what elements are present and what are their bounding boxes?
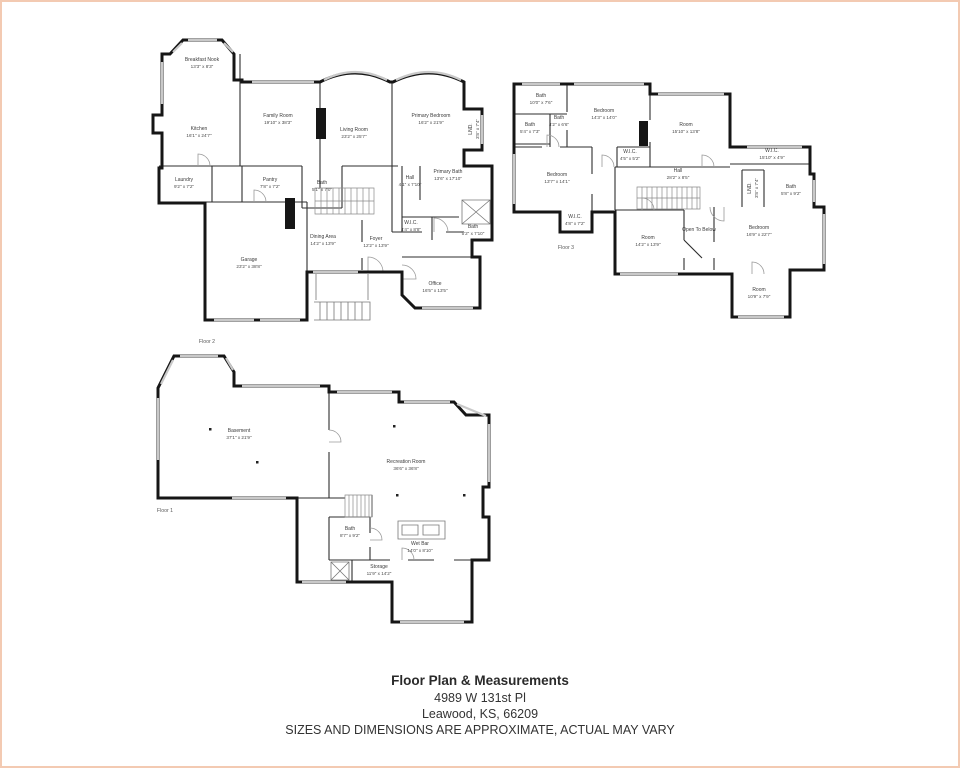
room-label: Hall4'1" x 7'10" bbox=[399, 175, 422, 187]
room-label: Bedroom16'9" x 22'7" bbox=[746, 225, 771, 237]
room-dimensions: 23'2" x 25'7" bbox=[340, 133, 368, 139]
room-name: Breakfast Nook bbox=[185, 57, 219, 64]
room-label: W.I.C.4'4" x 8'8" bbox=[401, 220, 421, 232]
room-dimensions: 3'8" x 7'4" bbox=[753, 178, 759, 198]
floor-label-floor-2: Floor 2 bbox=[199, 339, 215, 345]
room-dimensions: 11'9" x 14'2" bbox=[367, 570, 392, 576]
room-label: Dining Area14'2" x 13'9" bbox=[310, 234, 336, 246]
room-label: Bedroom14'3" x 14'0" bbox=[591, 108, 616, 120]
room-label: Bath5'8" x 9'2" bbox=[781, 184, 801, 196]
room-label: LND.3'8" x 7'4" bbox=[468, 119, 480, 139]
room-label: Bath8'7" x 9'2" bbox=[340, 526, 360, 538]
room-dimensions: 4'4" x 8'8" bbox=[401, 226, 421, 232]
room-label: Storage11'9" x 14'2" bbox=[367, 564, 392, 576]
room-label: Primary Bath13'6" x 17'10" bbox=[434, 169, 463, 181]
room-name: Family Room bbox=[263, 113, 292, 120]
room-dimensions: 4'8" x 7'2" bbox=[565, 220, 585, 226]
room-label: W.I.C.4'8" x 7'2" bbox=[565, 214, 585, 226]
room-dimensions: 36'6" x 36'8" bbox=[387, 465, 426, 471]
room-name: Dining Area bbox=[310, 234, 336, 241]
room-label: Family Room19'10" x 38'3" bbox=[263, 113, 292, 125]
room-label: W.I.C.4'5" x 5'2" bbox=[620, 149, 640, 161]
room-label: Primary Bedroom16'2" x 21'9" bbox=[412, 113, 451, 125]
room-dimensions: 4'2" x 6'6" bbox=[549, 121, 569, 127]
room-name: Laundry bbox=[174, 177, 194, 184]
room-dimensions: 16'2" x 21'9" bbox=[412, 119, 451, 125]
room-dimensions: 19'10" x 38'3" bbox=[263, 119, 292, 125]
room-label: Bath4'2" x 6'6" bbox=[549, 115, 569, 127]
room-dimensions: 5'1" x 7'0" bbox=[312, 186, 332, 192]
room-name: Primary Bath bbox=[434, 169, 463, 176]
room-dimensions: 37'1" x 21'9" bbox=[226, 434, 251, 440]
room-name: Storage bbox=[367, 564, 392, 571]
room-name: Bedroom bbox=[591, 108, 616, 115]
room-label: Room10'9" x 7'9" bbox=[748, 287, 771, 299]
room-dimensions: 3'8" x 7'4" bbox=[474, 119, 480, 139]
room-label: Bath10'0" x 7'6" bbox=[530, 93, 553, 105]
footer-text-block: Floor Plan & Measurements 4989 W 131st P… bbox=[2, 673, 958, 737]
room-dimensions: 13'6" x 17'10" bbox=[434, 175, 463, 181]
room-label: Wet Bar14'0" x 8'10" bbox=[407, 541, 432, 553]
room-label: LND.3'8" x 7'4" bbox=[747, 178, 759, 198]
footer-address-line1: 4989 W 131st Pl bbox=[2, 691, 958, 705]
room-dimensions: 10'0" x 7'6" bbox=[530, 99, 553, 105]
room-name: Primary Bedroom bbox=[412, 113, 451, 120]
room-dimensions: 4'5" x 5'2" bbox=[620, 155, 640, 161]
room-dimensions: 16'9" x 22'7" bbox=[746, 231, 771, 237]
room-name: Recreation Room bbox=[387, 459, 426, 466]
room-label: Office16'5" x 13'5" bbox=[422, 281, 447, 293]
room-label: Pantry7'8" x 7'2" bbox=[260, 177, 280, 189]
room-dimensions: 14'2" x 13'9" bbox=[310, 240, 336, 246]
room-dimensions: 14'3" x 14'0" bbox=[591, 114, 616, 120]
room-dimensions: 14'0" x 8'10" bbox=[407, 547, 432, 553]
room-label: Room15'10" x 13'8" bbox=[672, 122, 700, 134]
room-label: Garage23'2" x 38'8" bbox=[236, 257, 261, 269]
room-dimensions: 13'3" x 8'3" bbox=[185, 63, 219, 69]
room-name: Bedroom bbox=[746, 225, 771, 232]
floor-label-floor-1: Floor 1 bbox=[157, 508, 173, 514]
room-dimensions: 8'7" x 9'2" bbox=[340, 532, 360, 538]
room-dimensions: 12'2" x 13'9" bbox=[363, 242, 388, 248]
room-dimensions: 5'2" x 7'10" bbox=[462, 230, 485, 236]
room-label: W.I.C.15'10" x 4'9" bbox=[759, 148, 784, 160]
room-dimensions: 5'8" x 9'2" bbox=[781, 190, 801, 196]
room-labels-layer: Floor 2Breakfast Nook13'3" x 8'3"Kitchen… bbox=[2, 2, 958, 766]
room-label: Breakfast Nook13'3" x 8'3" bbox=[185, 57, 219, 69]
room-label: Room14'2" x 13'9" bbox=[635, 235, 660, 247]
room-dimensions: 13'7" x 14'1" bbox=[544, 178, 569, 184]
room-label: Kitchen16'1" x 24'7" bbox=[186, 126, 211, 138]
room-name: Bedroom bbox=[544, 172, 569, 179]
room-dimensions: 23'2" x 38'8" bbox=[236, 263, 261, 269]
room-dimensions: 7'8" x 7'2" bbox=[260, 183, 280, 189]
room-name: Wet Bar bbox=[407, 541, 432, 548]
room-label: Living Room23'2" x 25'7" bbox=[340, 127, 368, 139]
room-label: Bath5'2" x 7'10" bbox=[462, 224, 485, 236]
room-name: Living Room bbox=[340, 127, 368, 134]
room-dimensions: 5'4" x 7'3" bbox=[520, 128, 540, 134]
floorplan-page: Floor 2Breakfast Nook13'3" x 8'3"Kitchen… bbox=[0, 0, 960, 768]
room-label: Hall28'2" x 8'5" bbox=[667, 168, 690, 180]
room-label: Bath5'4" x 7'3" bbox=[520, 122, 540, 134]
floor-label-floor-3: Floor 3 bbox=[558, 245, 574, 251]
footer-disclaimer: SIZES AND DIMENSIONS ARE APPROXIMATE, AC… bbox=[2, 723, 958, 737]
room-dimensions: 14'2" x 13'9" bbox=[635, 241, 660, 247]
room-dimensions: 15'10" x 4'9" bbox=[759, 154, 784, 160]
room-dimensions: 16'5" x 13'5" bbox=[422, 287, 447, 293]
footer-address-line2: Leawood, KS, 66209 bbox=[2, 707, 958, 721]
room-dimensions: 15'10" x 13'8" bbox=[672, 128, 700, 134]
room-dimensions: 10'9" x 7'9" bbox=[748, 293, 771, 299]
room-label: Recreation Room36'6" x 36'8" bbox=[387, 459, 426, 471]
room-name: Basement bbox=[226, 428, 251, 435]
room-label: Laundry9'2" x 7'2" bbox=[174, 177, 194, 189]
room-dimensions: 9'2" x 7'2" bbox=[174, 183, 194, 189]
footer-title: Floor Plan & Measurements bbox=[2, 673, 958, 688]
room-label: Foyer12'2" x 13'9" bbox=[363, 236, 388, 248]
room-name: Pantry bbox=[260, 177, 280, 184]
room-label: Bedroom13'7" x 14'1" bbox=[544, 172, 569, 184]
room-dimensions: 4'1" x 7'10" bbox=[399, 181, 422, 187]
room-label: Bath5'1" x 7'0" bbox=[312, 180, 332, 192]
room-label: Open To Below bbox=[682, 227, 716, 234]
room-label: Basement37'1" x 21'9" bbox=[226, 428, 251, 440]
room-name: Open To Below bbox=[682, 227, 716, 234]
room-dimensions: 28'2" x 8'5" bbox=[667, 174, 690, 180]
room-dimensions: 16'1" x 24'7" bbox=[186, 132, 211, 138]
